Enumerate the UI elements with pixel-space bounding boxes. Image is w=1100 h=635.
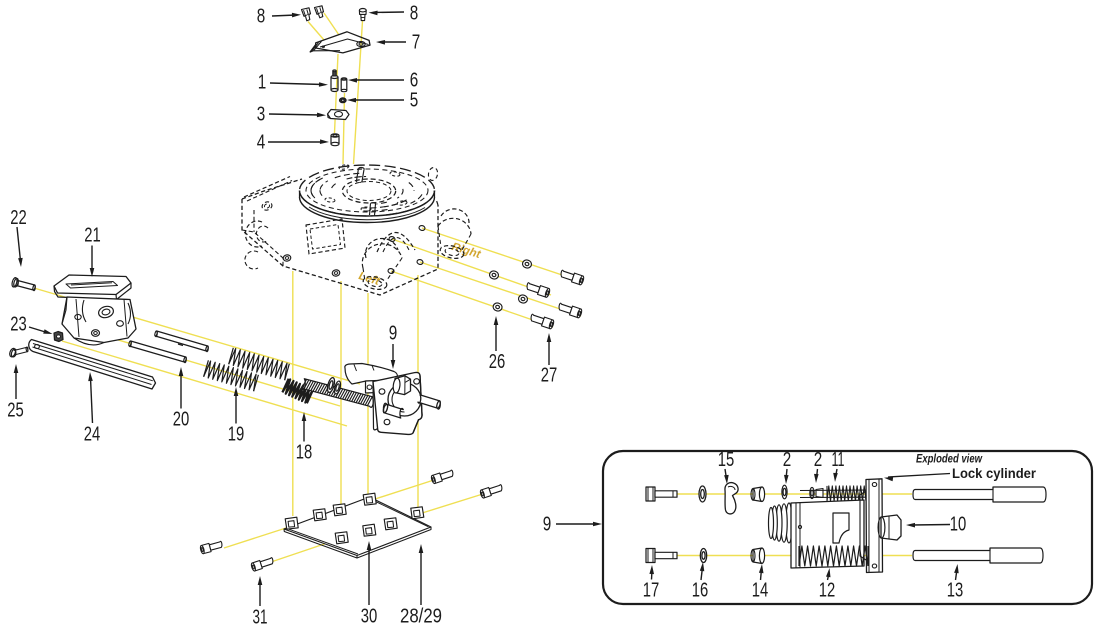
- svg-text:4: 4: [257, 131, 266, 154]
- svg-text:11: 11: [832, 448, 845, 471]
- svg-text:19: 19: [228, 423, 245, 446]
- svg-text:8: 8: [257, 5, 266, 28]
- svg-text:3: 3: [257, 103, 266, 126]
- svg-text:21: 21: [84, 224, 101, 247]
- svg-text:22: 22: [10, 206, 27, 229]
- svg-text:8: 8: [410, 2, 419, 25]
- svg-text:1: 1: [258, 71, 267, 94]
- svg-text:27: 27: [541, 364, 558, 387]
- svg-text:28/29: 28/29: [400, 605, 442, 628]
- svg-text:16: 16: [692, 579, 709, 602]
- svg-text:Lock cylinder: Lock cylinder: [952, 465, 1037, 481]
- svg-text:15: 15: [718, 448, 735, 471]
- svg-text:2: 2: [814, 448, 823, 471]
- svg-text:14: 14: [752, 579, 769, 602]
- svg-text:5: 5: [410, 89, 419, 112]
- svg-text:Exploded view: Exploded view: [916, 452, 983, 466]
- svg-text:7: 7: [412, 31, 421, 54]
- svg-text:18: 18: [296, 441, 313, 464]
- svg-text:17: 17: [643, 579, 660, 602]
- svg-text:26: 26: [489, 350, 506, 373]
- svg-text:20: 20: [173, 408, 190, 431]
- svg-text:9: 9: [389, 322, 398, 345]
- svg-text:24: 24: [84, 423, 101, 446]
- svg-text:12: 12: [819, 579, 836, 602]
- svg-text:9: 9: [543, 513, 552, 536]
- svg-text:25: 25: [7, 399, 24, 422]
- svg-text:13: 13: [947, 579, 964, 602]
- svg-text:6: 6: [410, 69, 419, 92]
- svg-text:2: 2: [783, 448, 792, 471]
- svg-text:30: 30: [361, 605, 378, 628]
- svg-text:23: 23: [10, 313, 27, 336]
- svg-text:31: 31: [253, 606, 268, 629]
- svg-text:10: 10: [950, 513, 967, 536]
